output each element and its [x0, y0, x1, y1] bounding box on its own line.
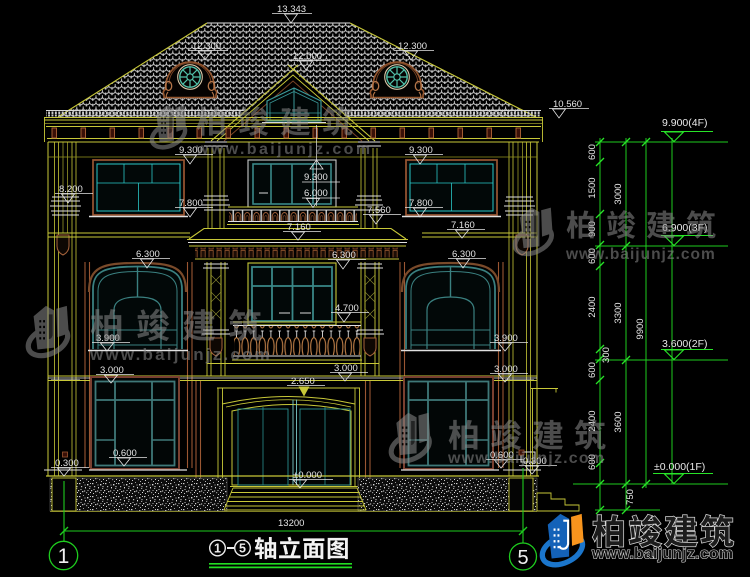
- svg-text:9.900(4F): 9.900(4F): [662, 117, 708, 129]
- svg-text:www.baijunjz.com: www.baijunjz.com: [195, 141, 373, 158]
- svg-text:1: 1: [214, 542, 221, 556]
- svg-text:www.baijunjz.com: www.baijunjz.com: [565, 246, 716, 263]
- svg-text:13200: 13200: [278, 518, 304, 529]
- svg-text:www.baijunjz.com: www.baijunjz.com: [591, 546, 733, 563]
- svg-text:9.300: 9.300: [304, 172, 328, 183]
- svg-text:300: 300: [601, 347, 612, 363]
- svg-text:3300: 3300: [613, 302, 624, 323]
- svg-text:www.baijunjz.com: www.baijunjz.com: [447, 450, 605, 467]
- svg-text:6.000: 6.000: [304, 188, 328, 199]
- svg-text:9900: 9900: [635, 318, 646, 339]
- svg-text:1: 1: [58, 545, 70, 568]
- svg-text:600: 600: [587, 144, 598, 160]
- svg-text:5: 5: [517, 547, 528, 569]
- svg-text:5: 5: [239, 542, 246, 556]
- svg-text:www.baijunjz.com: www.baijunjz.com: [89, 345, 272, 364]
- svg-text:750: 750: [625, 489, 636, 505]
- svg-text:2400: 2400: [587, 296, 598, 317]
- svg-text:3000: 3000: [613, 183, 624, 204]
- svg-text:600: 600: [587, 362, 598, 378]
- svg-text:3600: 3600: [613, 411, 624, 432]
- svg-text:1500: 1500: [587, 177, 598, 198]
- svg-text:±0.000(1F): ±0.000(1F): [654, 461, 705, 473]
- svg-text:3.600(2F): 3.600(2F): [662, 338, 708, 350]
